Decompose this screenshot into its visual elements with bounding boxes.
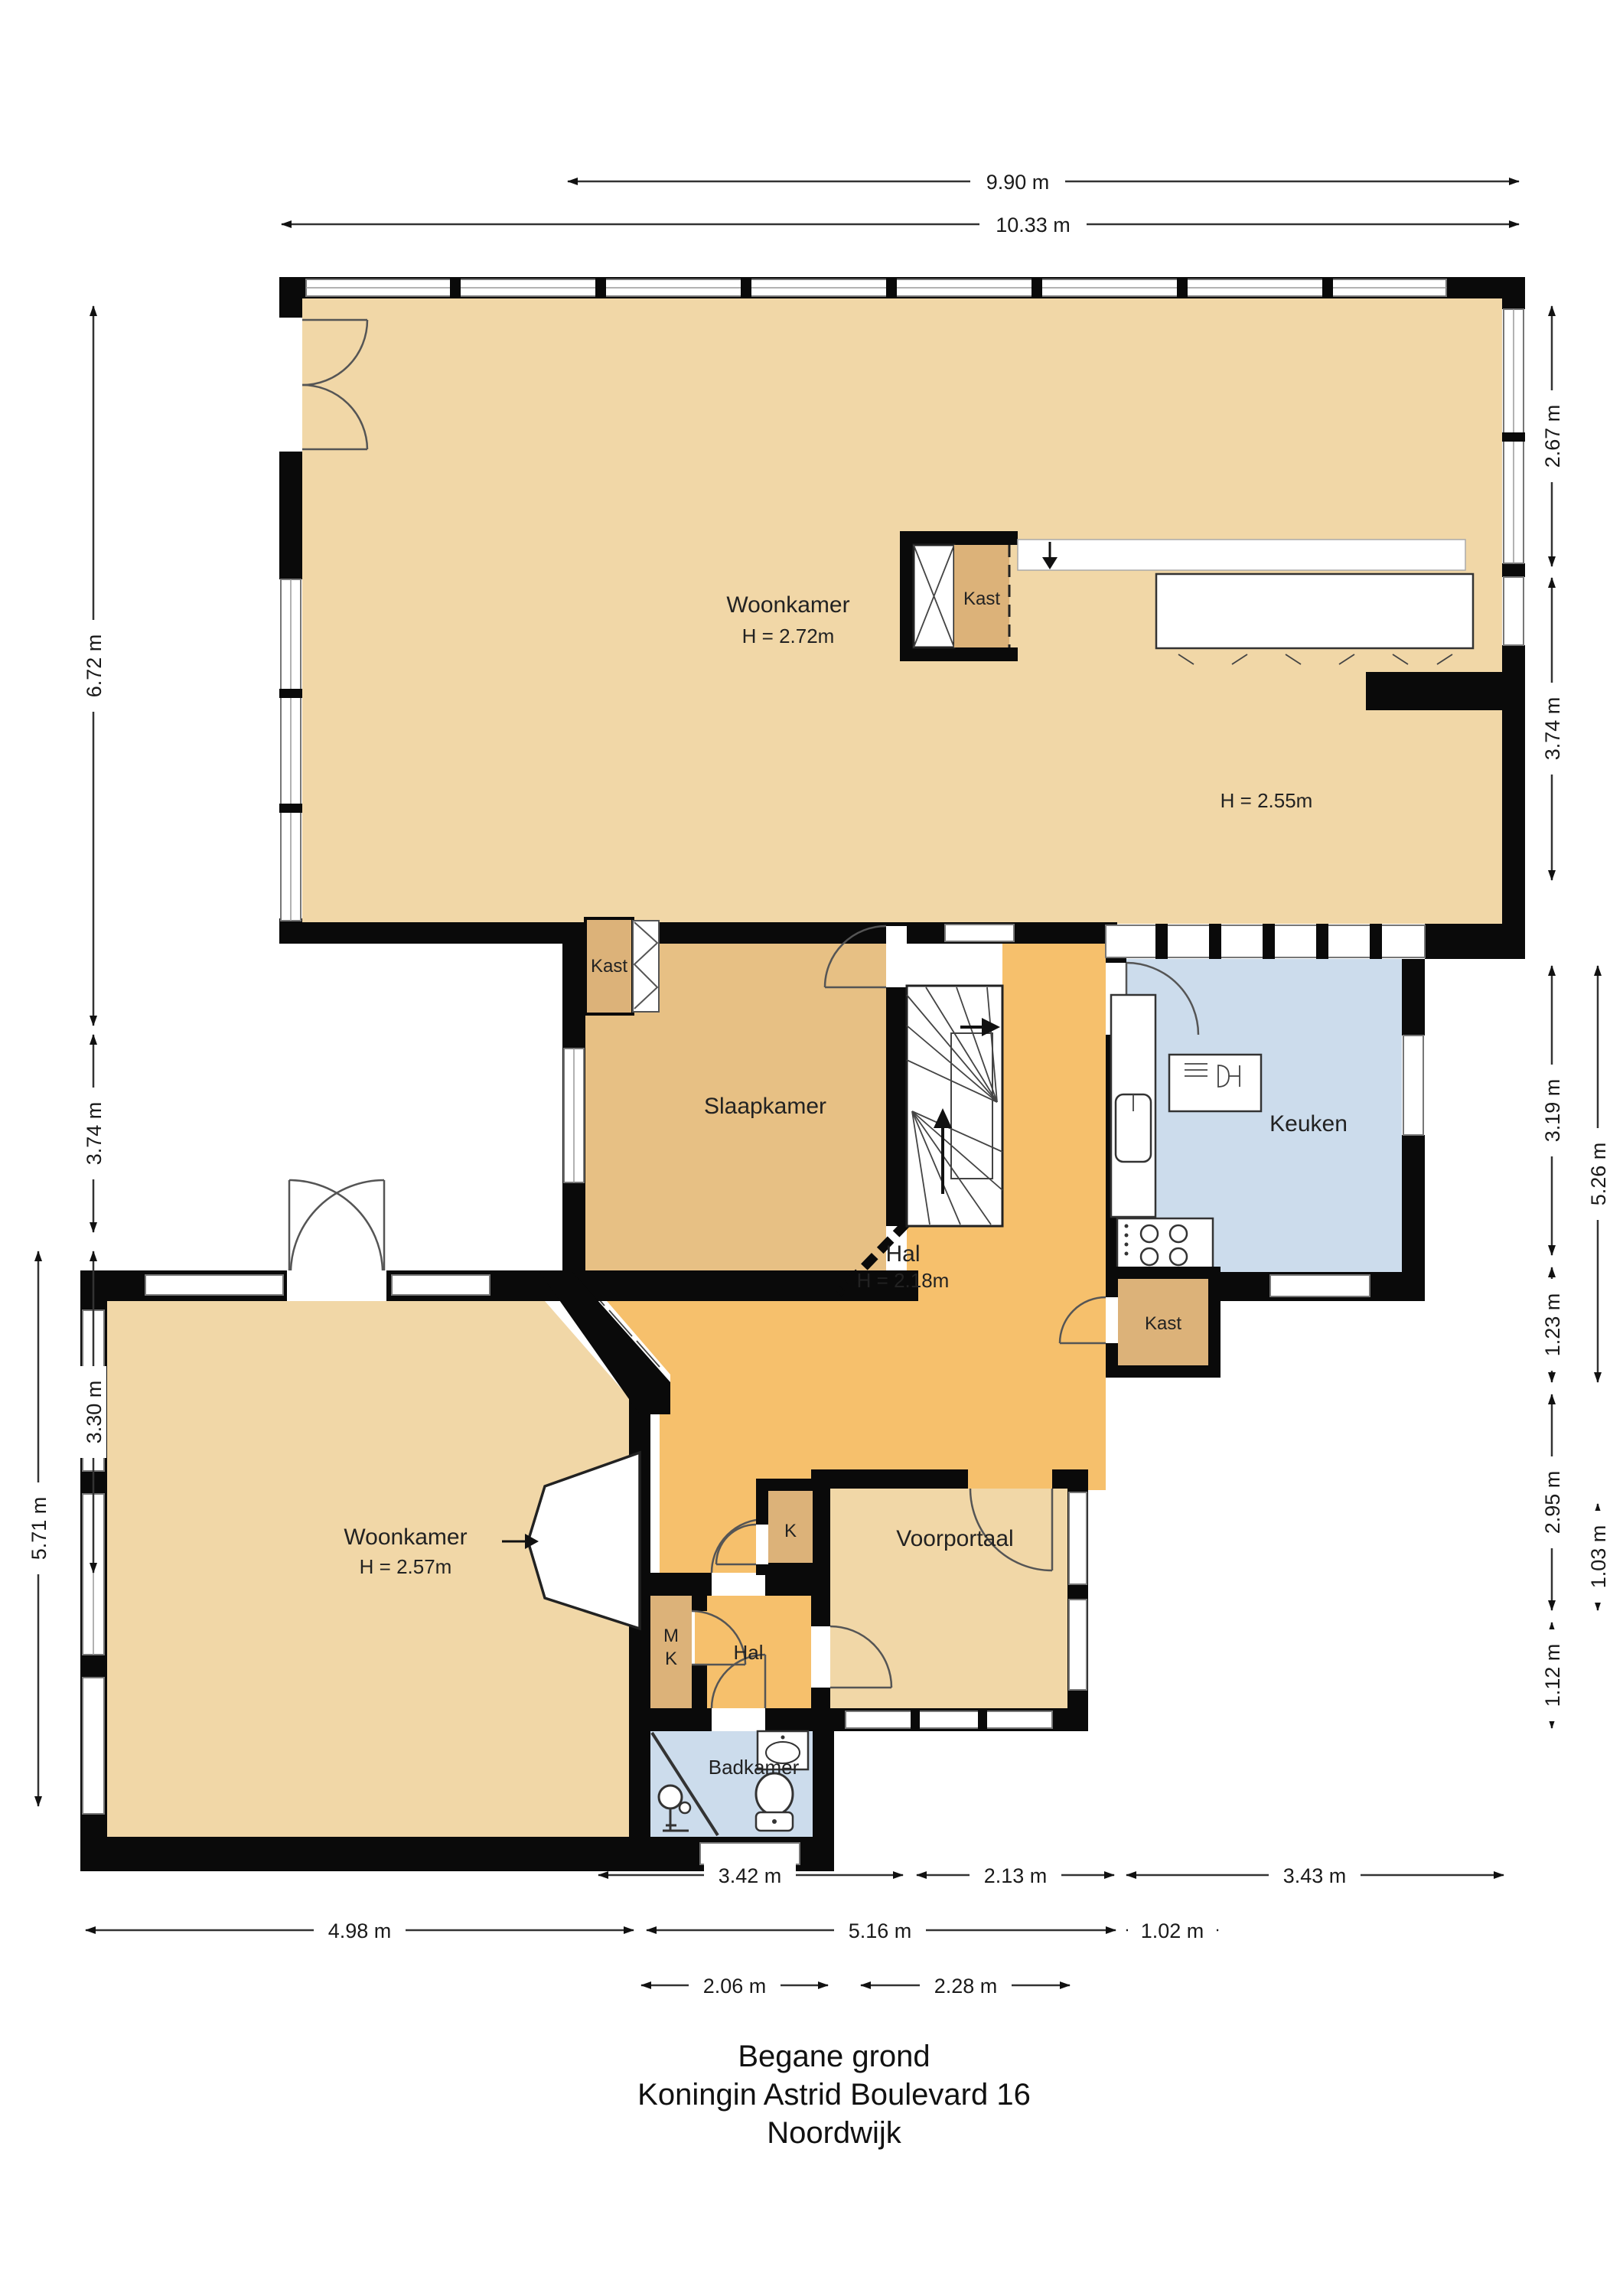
label-badkamer: Badkamer xyxy=(709,1756,800,1779)
svg-text:5.71 m: 5.71 m xyxy=(28,1497,51,1561)
room-voorportaal xyxy=(830,1489,1067,1708)
window-lower-top-2 xyxy=(392,1275,490,1295)
label-woonkamer-boven: Woonkamer xyxy=(726,592,849,618)
svg-text:1.02 m: 1.02 m xyxy=(1141,1919,1204,1942)
label-kast-keuken: Kast xyxy=(1145,1313,1181,1334)
dim-bottom-206: 2.06 m xyxy=(641,1972,828,1998)
dim-top-990: 9.90 m xyxy=(568,168,1519,194)
dim-right-267: 2.67 m xyxy=(1539,306,1565,566)
title-line1: Begane grond xyxy=(738,2040,930,2073)
dim-left-571: 5.71 m xyxy=(25,1251,51,1806)
label-kast-boven: Kast xyxy=(963,589,1000,609)
window-voorportaal-bottom xyxy=(846,1711,1052,1728)
label-kast-slaapkamer: Kast xyxy=(591,956,627,977)
window-upperright-2 xyxy=(1504,577,1524,645)
window-voorportaal-right-1 xyxy=(1069,1492,1087,1584)
dim-left-374: 3.74 m xyxy=(80,1035,106,1232)
svg-text:1.03 m: 1.03 m xyxy=(1587,1525,1610,1589)
label-meterkast-k: K xyxy=(665,1649,677,1669)
label-voorportaal: Voorportaal xyxy=(896,1526,1013,1551)
room-fills xyxy=(107,298,1502,1837)
stairs-icon xyxy=(907,986,1002,1226)
svg-text:2.28 m: 2.28 m xyxy=(934,1975,998,1998)
title-line2: Koningin Astrid Boulevard 16 xyxy=(637,2078,1031,2112)
dim-right-374: 3.74 m xyxy=(1539,578,1565,880)
ceiling-break-band xyxy=(1018,540,1465,570)
svg-text:2.95 m: 2.95 m xyxy=(1541,1471,1564,1534)
window-voorportaal-right-2 xyxy=(1069,1600,1087,1690)
dim-bottom-498: 4.98 m xyxy=(86,1917,634,1943)
svg-text:6.72 m: 6.72 m xyxy=(83,634,106,698)
dim-bottom-102: 1.02 m xyxy=(1126,1917,1218,1943)
label-slaapkamer: Slaapkamer xyxy=(704,1094,826,1119)
window-lowerleft-3 xyxy=(83,1678,104,1814)
floorplan-canvas: Woonkamer H = 2.72m H = 2.55m Kast Slaap… xyxy=(0,0,1623,2296)
dim-right-319: 3.19 m xyxy=(1539,966,1565,1255)
svg-text:3.43 m: 3.43 m xyxy=(1283,1864,1347,1887)
stove-counter xyxy=(1117,1218,1213,1270)
dim-bottom-516: 5.16 m xyxy=(647,1917,1116,1943)
label-hal-klein: Hal xyxy=(733,1641,763,1664)
label-hal-groot-height: H = 2.18m xyxy=(857,1269,950,1292)
label-woonkamer-boven-height: H = 2.72m xyxy=(742,625,835,647)
dim-bottom-343: 3.43 m xyxy=(1126,1862,1504,1888)
dim-bottom-228: 2.28 m xyxy=(861,1972,1070,1998)
dim-bottom-213: 2.13 m xyxy=(917,1862,1114,1888)
kitchen-island xyxy=(1169,1055,1261,1111)
title-block: Begane grond Koningin Astrid Boulevard 1… xyxy=(637,2040,1031,2150)
svg-text:2.67 m: 2.67 m xyxy=(1541,405,1564,468)
window-keuken-right xyxy=(1403,1035,1423,1135)
svg-text:5.16 m: 5.16 m xyxy=(849,1919,912,1942)
svg-text:5.26 m: 5.26 m xyxy=(1587,1143,1610,1206)
svg-text:3.19 m: 3.19 m xyxy=(1541,1079,1564,1143)
label-k-kast: K xyxy=(784,1521,797,1541)
svg-text:1.12 m: 1.12 m xyxy=(1541,1644,1564,1707)
window-stairs-top xyxy=(945,925,1014,941)
label-eethoek-height: H = 2.55m xyxy=(1221,789,1313,812)
window-lower-top-1 xyxy=(145,1275,283,1295)
svg-text:3.74 m: 3.74 m xyxy=(83,1102,106,1166)
label-hal-groot: Hal xyxy=(885,1241,920,1267)
dim-right-112: 1.12 m xyxy=(1539,1623,1565,1728)
dim-right-103: 1.03 m xyxy=(1585,1504,1611,1610)
svg-text:3.42 m: 3.42 m xyxy=(719,1864,782,1887)
svg-text:1.23 m: 1.23 m xyxy=(1541,1293,1564,1357)
svg-text:3.74 m: 3.74 m xyxy=(1541,697,1564,761)
svg-text:9.90 m: 9.90 m xyxy=(986,171,1050,194)
window-keuken-bottom xyxy=(1270,1275,1370,1296)
dim-top-1033: 10.33 m xyxy=(282,211,1519,237)
floorplan-page: Woonkamer H = 2.72m H = 2.55m Kast Slaap… xyxy=(0,0,1623,2296)
dim-left-672: 6.72 m xyxy=(80,306,106,1026)
svg-text:10.33 m: 10.33 m xyxy=(996,214,1071,236)
dim-right-123: 1.23 m xyxy=(1539,1267,1565,1382)
title-line3: Noordwijk xyxy=(767,2116,902,2150)
svg-text:2.13 m: 2.13 m xyxy=(984,1864,1048,1887)
label-meterkast-m: M xyxy=(663,1626,679,1646)
dim-right-295: 2.95 m xyxy=(1539,1394,1565,1610)
svg-text:3.30 m: 3.30 m xyxy=(83,1381,106,1444)
svg-text:2.06 m: 2.06 m xyxy=(703,1975,767,1998)
dim-right-526: 5.26 m xyxy=(1585,966,1611,1382)
label-woonkamer-beneden: Woonkamer xyxy=(344,1525,467,1550)
label-woonkamer-beneden-height: H = 2.57m xyxy=(360,1555,452,1578)
window-badkamer xyxy=(700,1843,800,1864)
toilet-icon xyxy=(756,1773,793,1815)
svg-text:4.98 m: 4.98 m xyxy=(328,1919,392,1942)
label-keuken: Keuken xyxy=(1269,1111,1348,1137)
